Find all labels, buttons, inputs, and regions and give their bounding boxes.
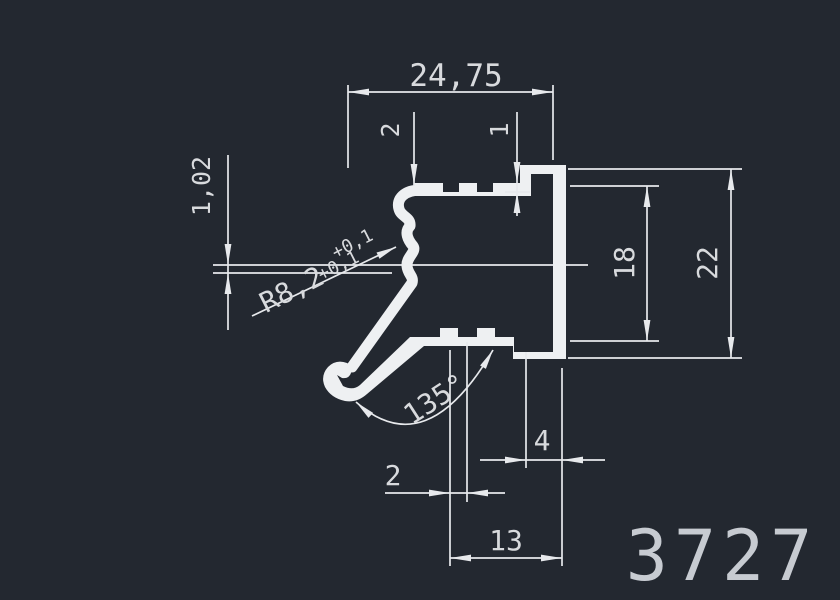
dim-top-wall-label: 2 [376,122,405,137]
technical-drawing: 24,75 2 1 1,02 R8,2 +0,1 +0,1 135° [0,0,840,600]
dim-top-lip-label: 1 [485,122,514,137]
dim-bottom-tooth-label: 2 [385,459,402,492]
dim-height-outer-label: 22 [691,246,724,280]
dim-bottom-offset-label: 4 [534,424,551,457]
dim-bottom-width-label: 13 [489,524,523,557]
dim-width-top-label: 24,75 [409,58,502,94]
dim-left-gap-label: 1,02 [187,156,216,216]
cad-canvas: 24,75 2 1 1,02 R8,2 +0,1 +0,1 135° [0,0,840,600]
part-number: 3727 [626,515,819,597]
dim-height-inner-label: 18 [608,246,641,280]
